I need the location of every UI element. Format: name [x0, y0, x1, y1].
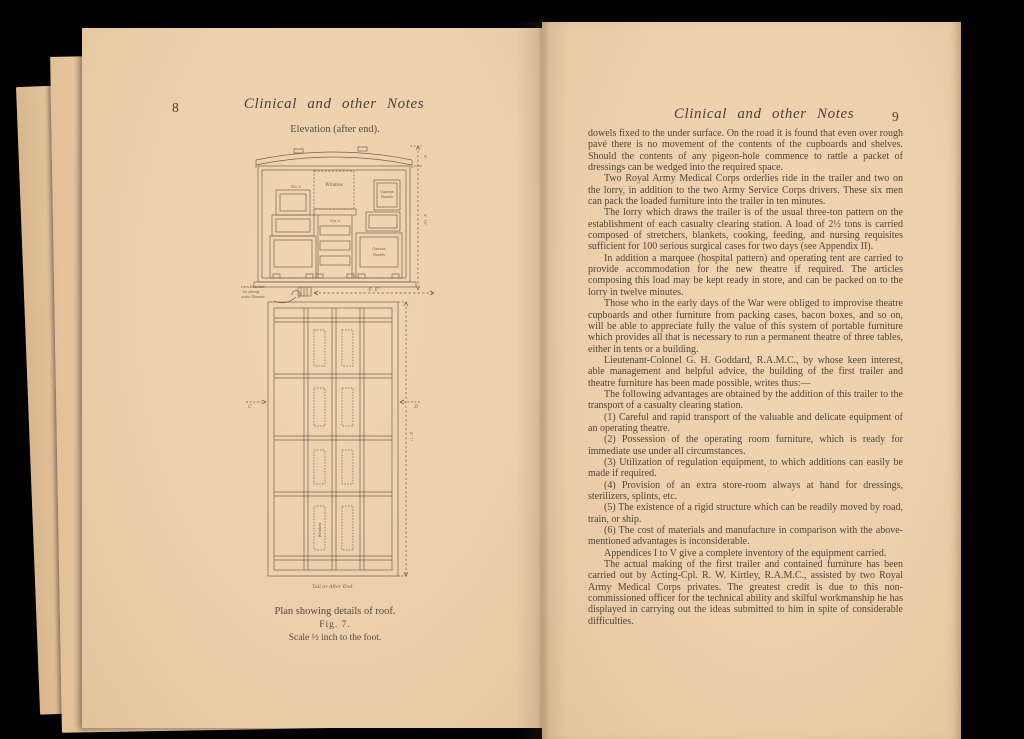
- body-paragraph: In addition a marquee (hospital pattern)…: [588, 253, 903, 298]
- window-label-elevation: Window: [325, 183, 343, 188]
- figure-scale-note: Scale ½ inch to the foot.: [210, 632, 460, 645]
- bracket-note: Iron Bracket: [240, 285, 265, 289]
- page-number-right: 9: [892, 109, 899, 125]
- body-paragraph: (3) Utilization of regulation equipment,…: [588, 457, 903, 480]
- right-page: Clinical and other Notes 9 dowels fixed …: [542, 22, 961, 739]
- canvas-panels-top-label: Canvas: [380, 190, 393, 194]
- plan-side-dimension: 5'. 1": [409, 432, 413, 442]
- body-paragraph: dowels fixed to the under surface. On th…: [588, 128, 903, 173]
- bracket-note: to clamp: [243, 290, 260, 294]
- no5-label: No 5: [330, 218, 340, 223]
- elevation-drawing: [254, 146, 434, 303]
- figure-number: Fig. 7.: [210, 619, 460, 632]
- plan-point-d-label: D: [413, 404, 418, 410]
- book-spread: 8 Clinical and other Notes Elevation (af…: [0, 0, 1024, 739]
- canvas-panels-top-label: Panels: [381, 195, 393, 199]
- figure-caption-line: Plan showing details of roof.: [210, 605, 460, 619]
- body-paragraph: (2) Possession of the operating room fur…: [588, 434, 903, 457]
- body-paragraph: Lieutenant-Colonel G. H. Goddard, R.A.M.…: [588, 355, 903, 389]
- body-text-column: dowels fixed to the under surface. On th…: [588, 128, 903, 627]
- body-paragraph: The actual making of the first trailer a…: [588, 559, 903, 627]
- body-paragraph: The following advantages are obtained by…: [588, 389, 903, 412]
- bracket-note: onto Chassis: [241, 295, 265, 299]
- elevation-top-dimension: 8": [423, 155, 427, 159]
- figure-caption-block: Plan showing details of roof. Fig. 7. Sc…: [210, 605, 460, 645]
- canvas-panels-bottom-label: Canvas: [372, 247, 385, 251]
- figure-7-drawing: Window No 3 No 5 Canvas Panels Canvas Pa…: [240, 140, 470, 620]
- left-page: 8 Clinical and other Notes Elevation (af…: [82, 28, 542, 728]
- body-paragraph: The lorry which draws the trailer is of …: [588, 207, 903, 252]
- body-paragraph: (5) The existence of a rigid structure w…: [588, 502, 903, 525]
- plan-point-c-label: C: [248, 404, 252, 410]
- plan-drawing: [246, 302, 420, 576]
- width-dimension: 6'. 6": [368, 287, 379, 292]
- body-paragraph: Appendices I to V give a complete invent…: [588, 548, 903, 559]
- elevation-side-dimension: 2'. 10": [423, 214, 427, 226]
- running-header-left: Clinical and other Notes: [244, 96, 424, 113]
- window-label-plan: Window: [318, 523, 322, 538]
- tail-end-label: Tail or After End.: [312, 584, 354, 590]
- figure-caption-elevation: Elevation (after end).: [290, 124, 380, 135]
- canvas-panels-bottom-label: Panels: [373, 253, 385, 257]
- body-paragraph: (1) Careful and rapid transport of the v…: [588, 412, 903, 435]
- body-paragraph: (4) Provision of an extra store-room alw…: [588, 480, 903, 503]
- body-paragraph: Those who in the early days of the War w…: [588, 298, 903, 355]
- running-header-right: Clinical and other Notes: [674, 106, 854, 123]
- body-paragraph: (6) The cost of materials and manufactur…: [588, 525, 903, 548]
- no3-label: No 3: [291, 184, 301, 189]
- page-number-left: 8: [172, 100, 179, 116]
- body-paragraph: Two Royal Army Medical Corps orderlies r…: [588, 173, 903, 207]
